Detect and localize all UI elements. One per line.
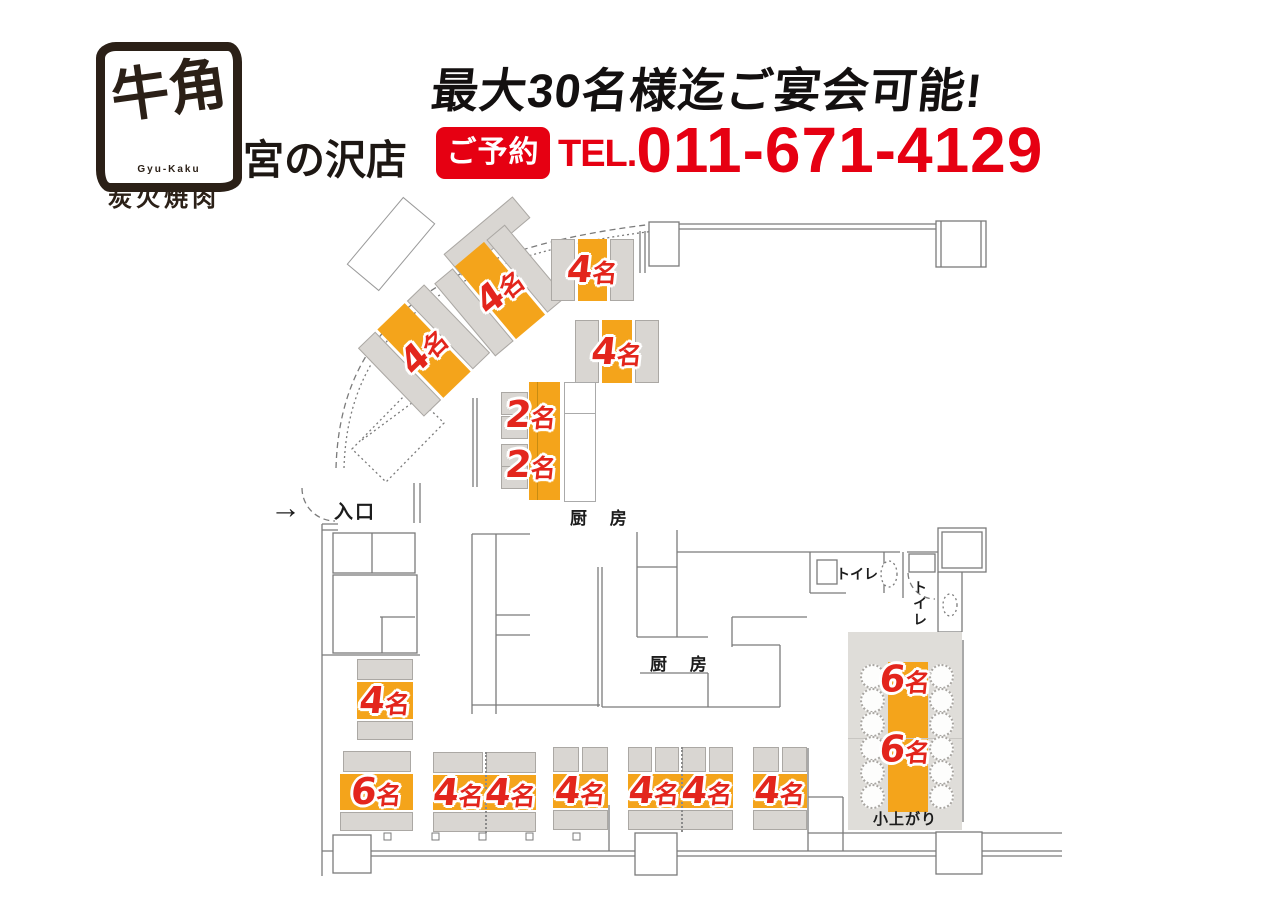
capacity-label: 4名 xyxy=(483,773,538,810)
tatami-cushion xyxy=(860,784,885,809)
capacity-label: 4名 xyxy=(751,772,809,809)
tatami-cushion xyxy=(929,784,954,809)
tatami-name: 小上がり xyxy=(848,808,962,829)
bench xyxy=(655,747,679,772)
booth-south-6: 6名 xyxy=(340,751,413,832)
booth-south-double-1: 4名 4名 xyxy=(433,752,536,833)
capacity-label: 4名 xyxy=(551,772,610,809)
bench xyxy=(582,747,608,772)
counter-seating: 2名 2名 xyxy=(498,380,598,502)
bench xyxy=(357,721,413,740)
bench xyxy=(753,810,807,830)
booth-south-single-1: 4名 xyxy=(553,747,608,832)
tatami-area: 6名 6名 小上がり xyxy=(848,632,962,830)
capacity-label: 4名 xyxy=(355,681,415,718)
capacity-label: 6名 xyxy=(846,731,964,767)
table: 4名 4名 xyxy=(433,775,536,810)
table: 4名 4名 xyxy=(628,774,733,808)
bench xyxy=(553,810,608,830)
kitchen-label-upper: 厨 房 xyxy=(570,504,636,529)
capacity-label: 4名 xyxy=(549,251,636,288)
bench xyxy=(340,812,413,831)
booth-south-single-2: 4名 xyxy=(753,747,807,832)
capacity-label: 2名 xyxy=(496,446,566,483)
table: 4名 xyxy=(357,682,413,719)
bench xyxy=(357,659,413,680)
counter-desk xyxy=(564,382,596,502)
entrance-label: 入口 xyxy=(334,497,376,524)
capacity-label: 6名 xyxy=(846,661,964,697)
table: 4名 xyxy=(553,774,608,808)
floor-plan: 4名 4名 4名 4名 2名 xyxy=(0,0,1280,910)
capacity-label: 4名 xyxy=(573,332,661,369)
table: 6名 xyxy=(340,774,413,810)
bench xyxy=(782,747,808,772)
capacity-label: 4名 xyxy=(431,773,486,810)
capacity-label: 6名 xyxy=(338,773,415,810)
capacity-label: 4名 xyxy=(679,772,735,809)
table: 4名 xyxy=(753,774,807,808)
entrance-arrow-icon: → xyxy=(270,490,301,526)
flyer: 牛角 Gyu-Kaku 炭火焼肉 宮の沢店 最大30名様迄ご宴会可能! ご予約 … xyxy=(0,0,1280,910)
booth-south-double-2: 4名 4名 xyxy=(628,747,733,832)
bench xyxy=(709,747,733,772)
toilet-label-b: トイレ xyxy=(910,580,930,628)
booth-west: 4名 xyxy=(357,659,413,742)
booth-top-2: 4名 xyxy=(575,320,659,383)
capacity-label: 2名 xyxy=(496,396,566,433)
toilet-label-a: トイレ xyxy=(836,564,878,584)
capacity-label: 4名 xyxy=(626,772,682,809)
booth-top-1: 4名 xyxy=(551,239,634,301)
kitchen-label-lower: 厨 房 xyxy=(650,650,716,675)
